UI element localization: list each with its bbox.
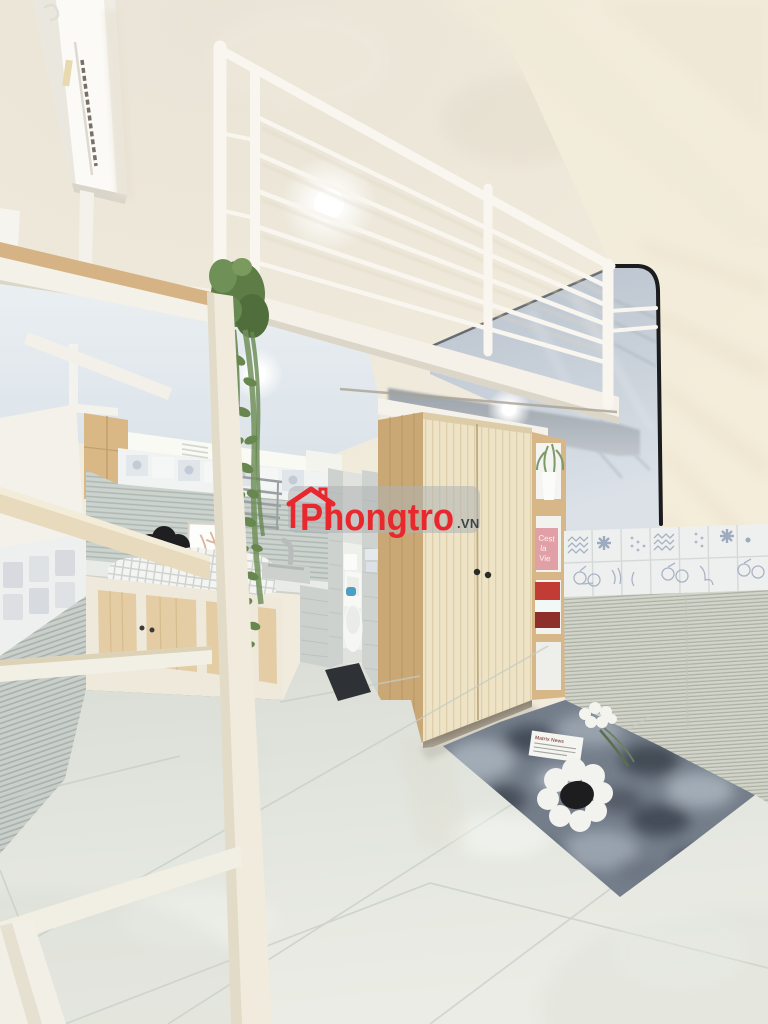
svg-text:Cest: Cest: [538, 533, 556, 543]
svg-text:la: la: [540, 544, 547, 553]
svg-text:Phongtro: Phongtro: [300, 497, 454, 539]
svg-text:.VN: .VN: [457, 516, 480, 531]
svg-text:Vie: Vie: [539, 554, 552, 564]
